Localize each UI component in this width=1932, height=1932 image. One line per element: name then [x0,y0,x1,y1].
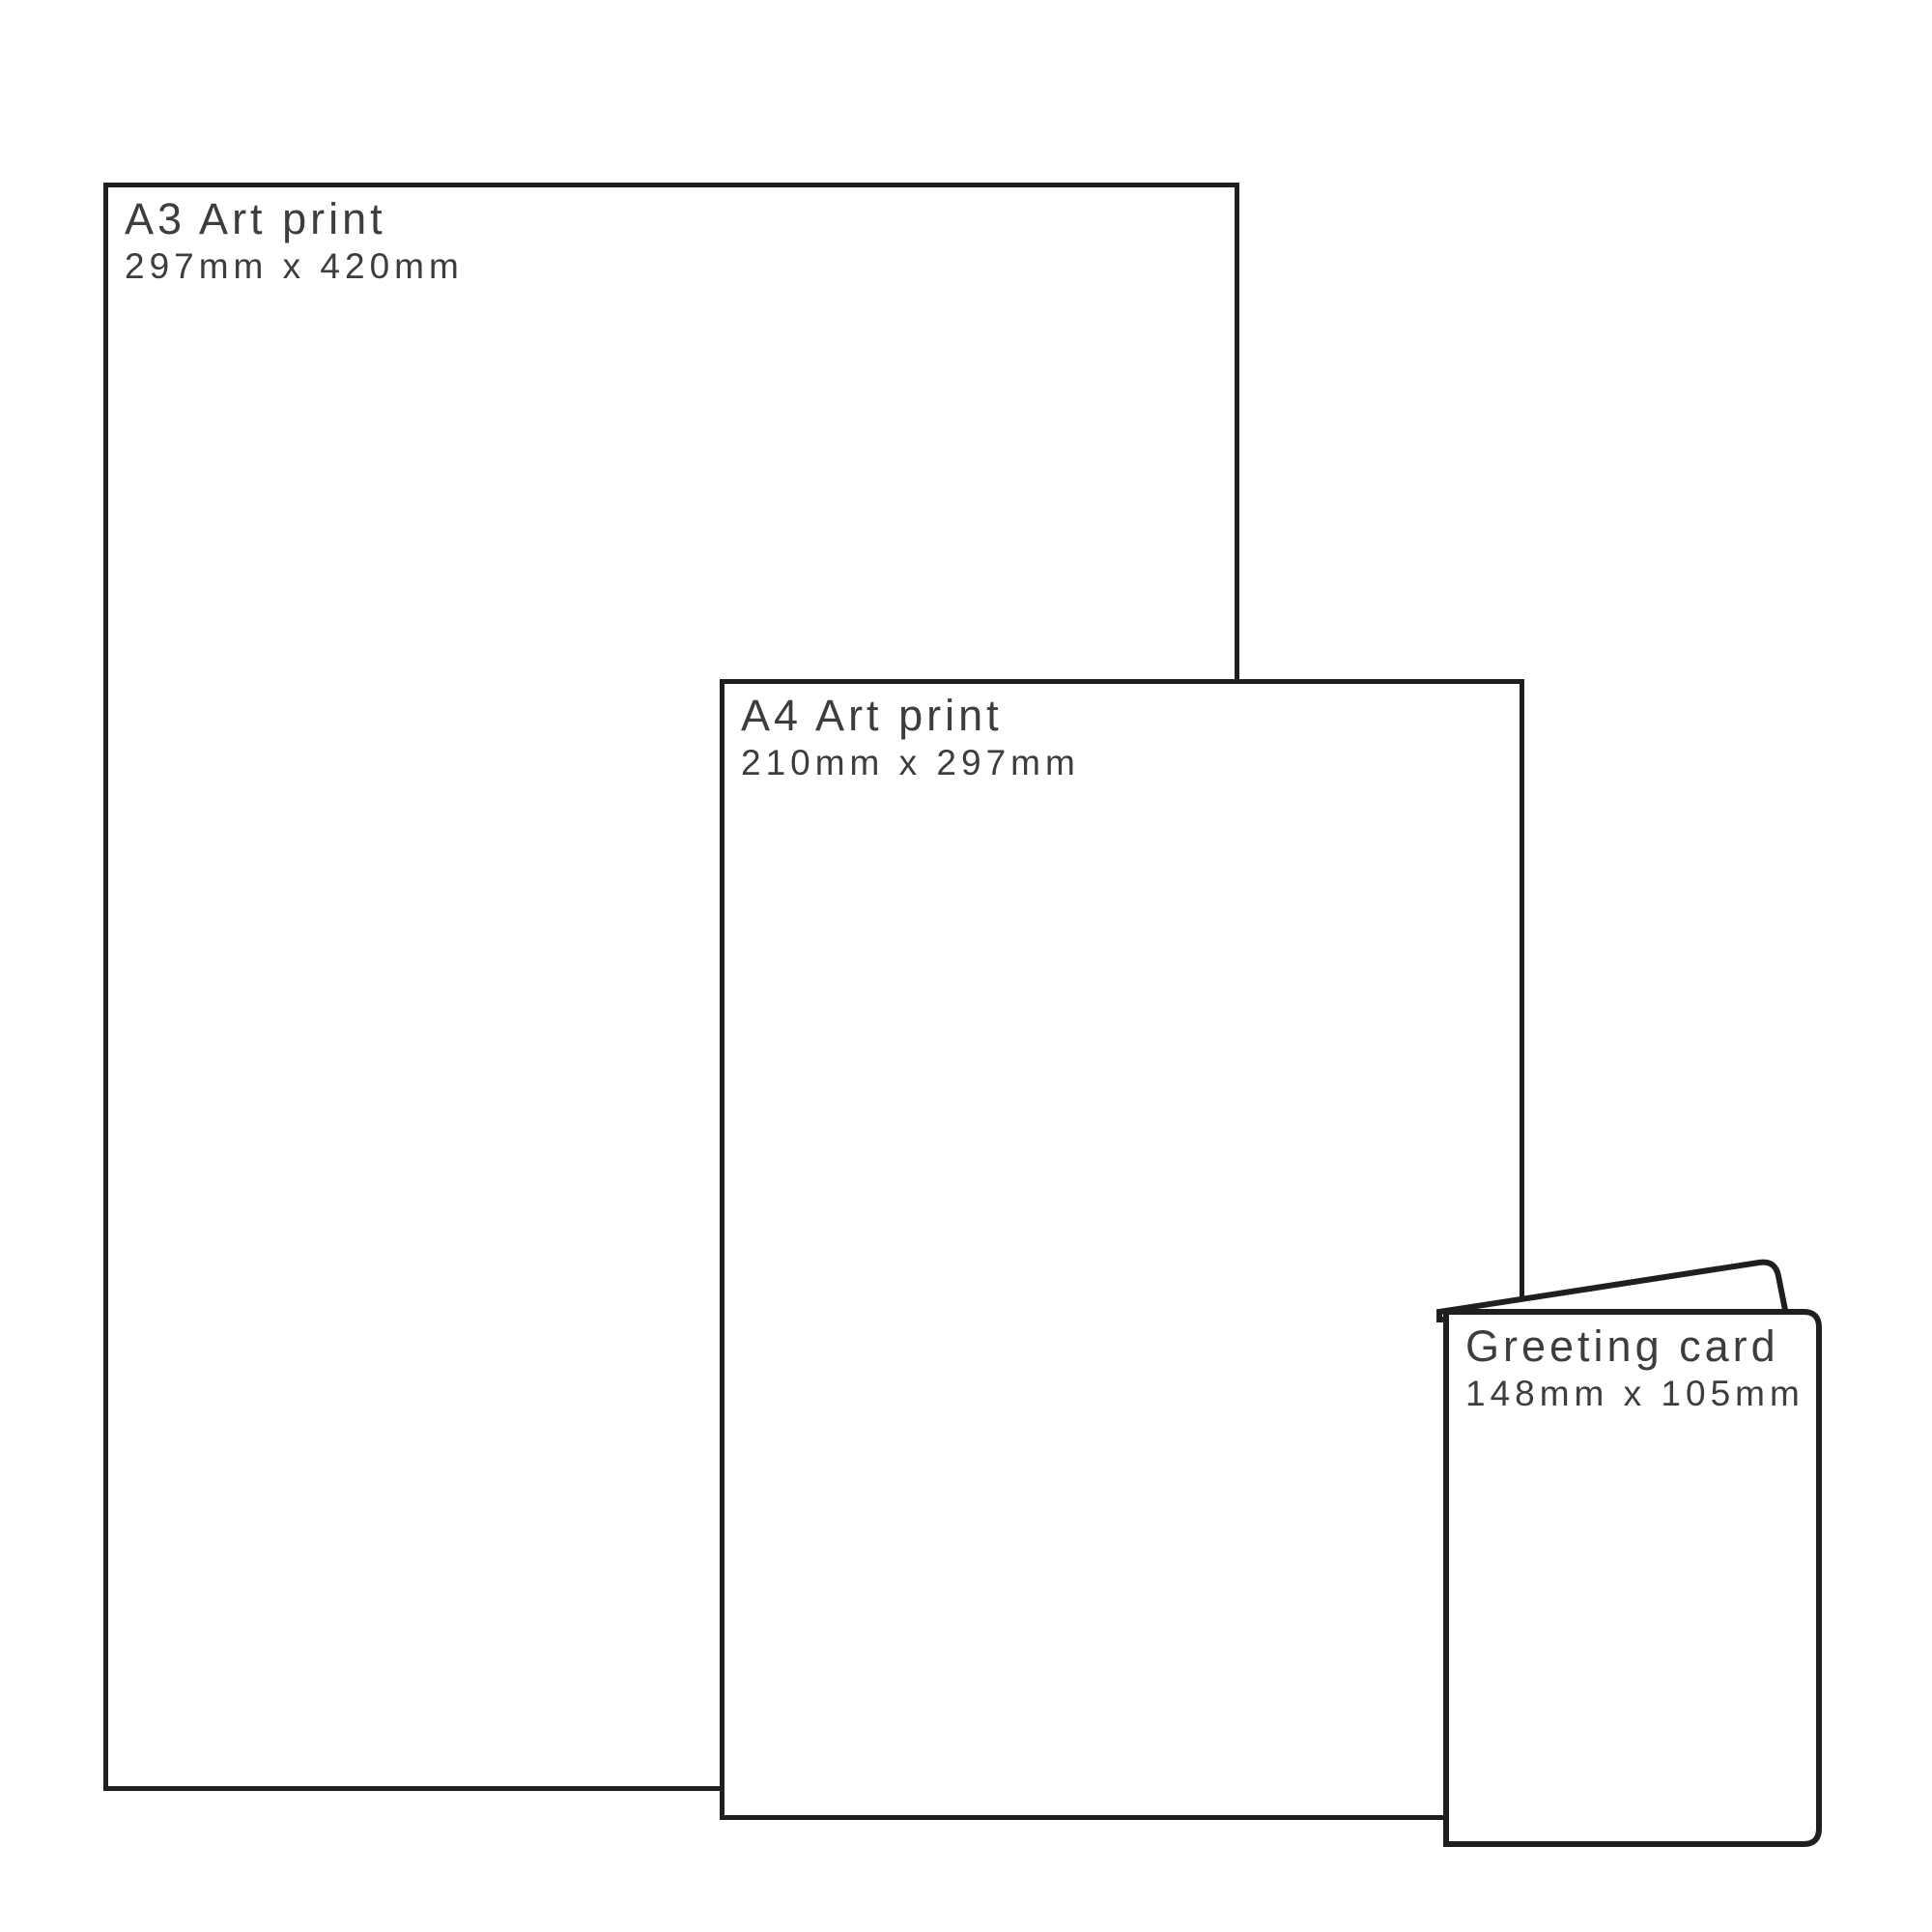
a3-dimensions: 297mm x 420mm [125,247,1235,287]
a3-title: A3 Art print [125,195,1235,243]
a4-title: A4 Art print [741,692,1520,740]
a4-label: A4 Art print 210mm x 297mm [724,684,1520,782]
a4-dimensions: 210mm x 297mm [741,744,1520,783]
greeting-card-title: Greeting card [1465,1322,1804,1371]
greeting-card-outline [1391,1198,1932,1932]
size-comparison-diagram: A3 Art print 297mm x 420mm A4 Art print … [0,0,1932,1932]
greeting-card-dimensions: 148mm x 105mm [1465,1375,1804,1414]
greeting-card-label: Greeting card 148mm x 105mm [1449,1315,1804,1413]
a3-label: A3 Art print 297mm x 420mm [108,187,1235,286]
